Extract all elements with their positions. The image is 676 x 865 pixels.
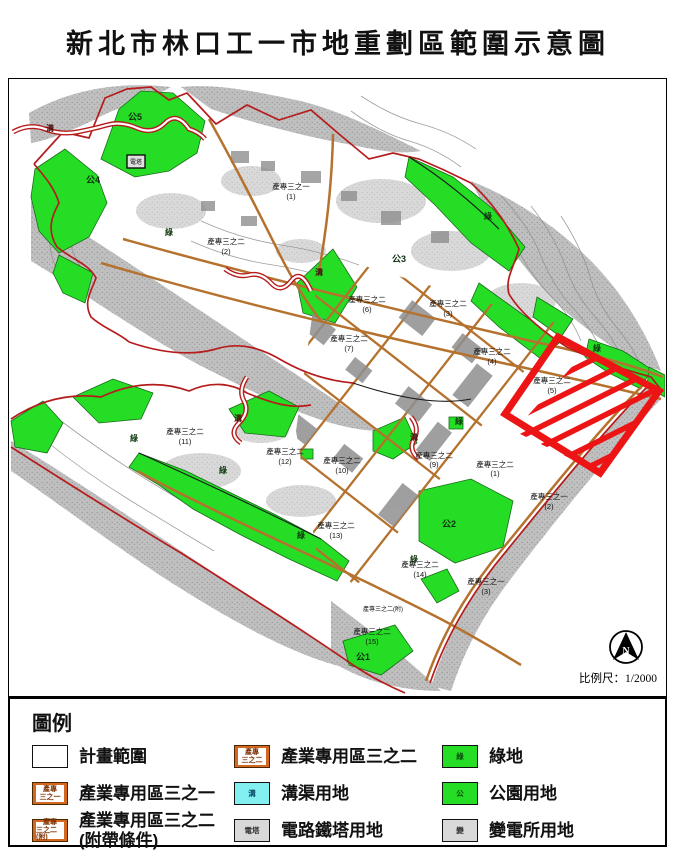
legend-item-zone-3-1: 產專三之一產業專用區三之一 <box>32 782 228 805</box>
zone-label: 產專三之二 <box>476 459 514 469</box>
zone-label: 產專三之二 <box>401 559 439 569</box>
zone-label: 溝 <box>315 267 323 277</box>
legend-swatch-green-land: 綠 <box>442 745 478 768</box>
legend-swatch-zone-3-2: 產專三之二 <box>234 745 270 768</box>
zone-label: 綠 <box>297 530 306 540</box>
zone-label: 產專三之二 <box>317 520 355 530</box>
zone-label: 產專三之一 <box>530 491 568 501</box>
legend-item-tower: 電塔電路鐵塔用地 <box>234 819 436 842</box>
zone-label: (12) <box>278 457 292 466</box>
legend-label-zone-3-1: 產業專用區三之一 <box>79 784 215 803</box>
zone-label: 綠 <box>593 343 602 353</box>
zone-label: 產專三之二(附) <box>363 605 403 613</box>
zone-label: 公3 <box>392 254 406 264</box>
zone-label: 綠 <box>165 227 174 237</box>
page: 新北市林口工一市地重劃區範圍示意圖 <box>0 0 676 865</box>
legend-swatch-plan-boundary <box>32 745 68 768</box>
zone-label: (13) <box>329 531 343 540</box>
zone-label: 產專三之二 <box>473 346 511 356</box>
zone-label: (9) <box>429 460 439 469</box>
zone-label: (11) <box>179 437 192 446</box>
legend-label-substation: 變電所用地 <box>489 821 574 840</box>
zone-label: (2) <box>544 502 554 511</box>
zone-label: 產專三之二 <box>429 298 467 308</box>
zone-label: 綠 <box>219 465 228 475</box>
zone-label: (3) <box>481 587 491 596</box>
legend-swatch-zone-3-1: 產專三之一 <box>32 782 68 805</box>
zone-label: 公5 <box>128 112 142 122</box>
legend-label-ditch: 溝渠用地 <box>281 784 349 803</box>
zone-label: (1) <box>286 192 296 201</box>
zone-label: 綠 <box>130 433 139 443</box>
scale-label: 比例尺：1/2000 <box>579 671 657 685</box>
zone-label: 產專三之二 <box>353 626 391 636</box>
zone-label: 綠 <box>455 416 464 426</box>
zone-label: (5) <box>547 386 557 395</box>
legend-box: 圖例 計畫範圍產專三之一產業專用區三之一產專三之二(附)產業專用區三之二(附帶條… <box>8 697 667 847</box>
zone-label: 綠 <box>484 211 493 221</box>
zone-label: 產專三之二 <box>348 294 386 304</box>
legend-label-tower: 電路鐵塔用地 <box>281 821 383 840</box>
legend-swatch-park: 公 <box>442 782 478 805</box>
zone-label: 產專三之二 <box>533 375 571 385</box>
map-frame: N 比例尺：1/2000 公5公4公3公2公1綠綠綠綠綠綠綠綠溝溝溝溝電塔產專三… <box>8 78 667 697</box>
legend-item-zone-3-2: 產專三之二產業專用區三之二 <box>234 745 436 768</box>
zone-label: (15) <box>365 637 379 646</box>
zone-label: 產專三之二 <box>166 426 204 436</box>
legend-label-park: 公園用地 <box>489 784 557 803</box>
zone-label: (14) <box>413 570 427 579</box>
legend-title: 圖例 <box>32 707 665 736</box>
north-letter: N <box>622 646 630 657</box>
zone-label: 產專三之二 <box>330 333 368 343</box>
map-canvas: N 比例尺：1/2000 公5公4公3公2公1綠綠綠綠綠綠綠綠溝溝溝溝電塔產專三… <box>9 79 665 695</box>
zone-label: 產專三之二 <box>207 236 245 246</box>
page-title: 新北市林口工一市地重劃區範圍示意圖 <box>0 22 676 61</box>
legend-label-plan-boundary: 計畫範圍 <box>79 747 147 766</box>
zone-label: (1) <box>490 469 500 478</box>
legend-label-zone-3-2-cond: 產業專用區三之二(附帶條件) <box>79 811 215 849</box>
zone-label: (2) <box>221 247 231 256</box>
zone-label: 產專三之二 <box>415 450 453 460</box>
legend-grid: 計畫範圍產專三之一產業專用區三之一產專三之二(附)產業專用區三之二(附帶條件)產… <box>32 738 665 849</box>
legend-swatch-tower: 電塔 <box>234 819 270 842</box>
legend-item-park: 公公園用地 <box>442 782 622 805</box>
legend-swatch-ditch: 溝 <box>234 782 270 805</box>
zone-label: 產專三之二 <box>266 446 304 456</box>
zone-label: 溝 <box>46 123 54 133</box>
legend-item-ditch: 溝溝渠用地 <box>234 782 436 805</box>
zone-label: (6) <box>362 305 372 314</box>
legend-swatch-substation: 變 <box>442 819 478 842</box>
legend-item-plan-boundary: 計畫範圍 <box>32 745 228 768</box>
zone-label: 產專三之二 <box>323 455 361 465</box>
zone-label: 公4 <box>86 175 100 185</box>
zone-label: 產專三之一 <box>272 181 310 191</box>
legend-label-green-land: 綠地 <box>489 747 523 766</box>
zone-label: (3) <box>443 309 453 318</box>
zone-label: 產專三之一 <box>467 576 505 586</box>
zone-label: 公1 <box>356 652 370 662</box>
zone-label: 公2 <box>442 519 456 529</box>
legend-item-green-land: 綠綠地 <box>442 745 622 768</box>
north-arrow: N <box>610 631 642 663</box>
zone-label: 電塔 <box>130 158 142 166</box>
zone-label: 溝 <box>410 432 418 442</box>
zone-label: (7) <box>344 344 354 353</box>
legend-label-zone-3-2: 產業專用區三之二 <box>281 747 417 766</box>
zone-label: (10) <box>335 466 349 475</box>
zone-label: (4) <box>487 357 497 366</box>
legend-swatch-zone-3-2-cond: 產專三之二(附) <box>32 819 68 842</box>
legend-item-substation: 變變電所用地 <box>442 819 622 842</box>
zone-label: 溝 <box>234 413 242 423</box>
legend-item-zone-3-2-cond: 產專三之二(附)產業專用區三之二(附帶條件) <box>32 811 228 849</box>
